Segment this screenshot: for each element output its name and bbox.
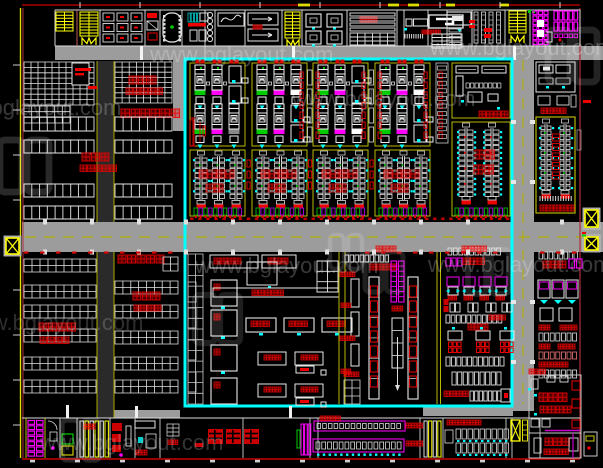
svg-text:www.bglayout.com: www.bglayout.com (291, 86, 475, 111)
svg-text:www.bglayout.com: www.bglayout.com (194, 253, 378, 278)
svg-text:www.bglayout.com: www.bglayout.com (39, 430, 223, 455)
svg-text:www.bglayout.com: www.bglayout.com (0, 95, 121, 120)
svg-text:www.bglayout.com: www.bglayout.com (149, 42, 333, 67)
svg-text:www.bglayout.com: www.bglayout.com (0, 310, 143, 335)
svg-text:www.bglayout.com: www.bglayout.com (427, 252, 603, 277)
